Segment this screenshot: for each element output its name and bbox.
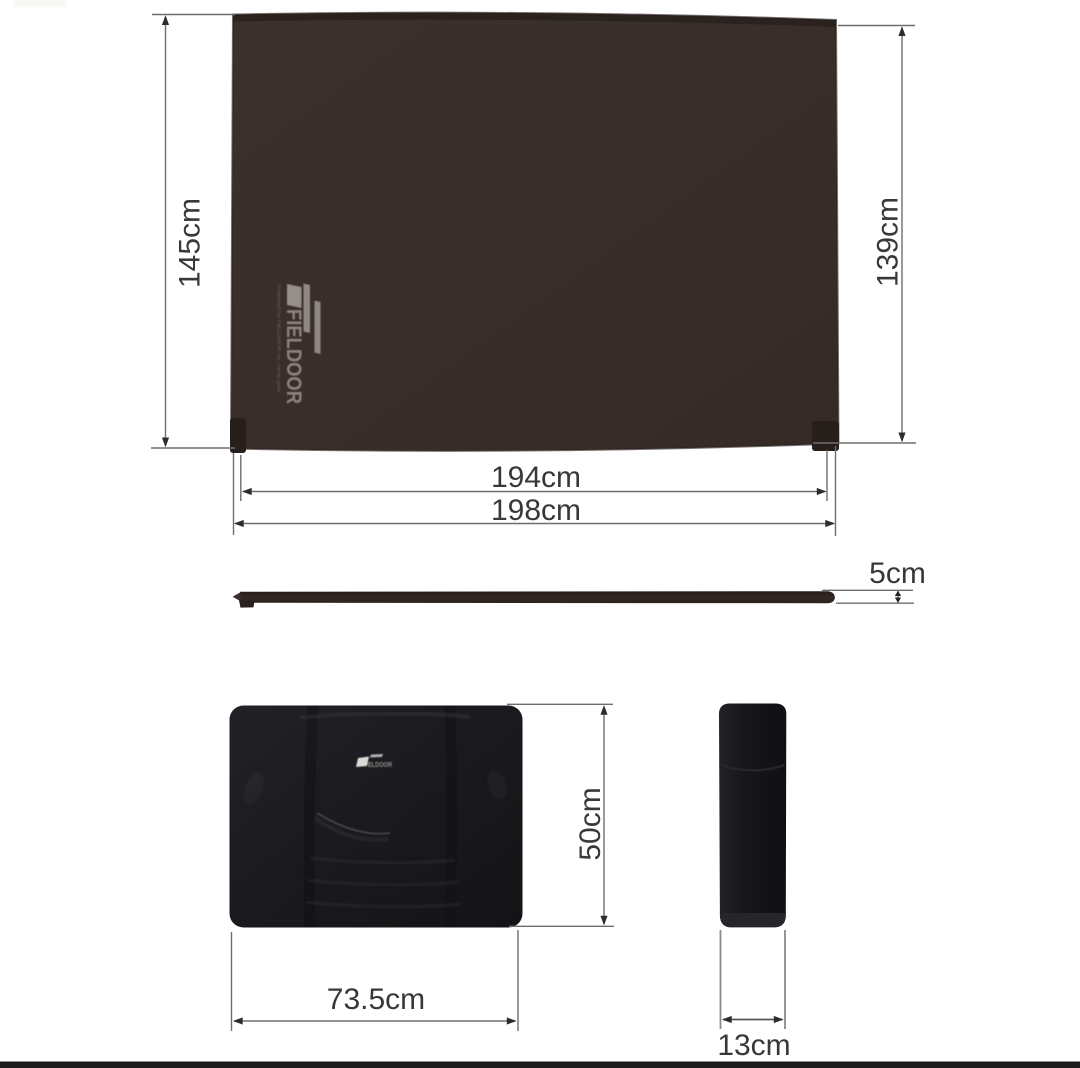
svg-text:13cm: 13cm — [717, 1029, 790, 1062]
svg-text:194cm: 194cm — [491, 461, 581, 494]
svg-text:139cm: 139cm — [872, 197, 905, 287]
svg-text:5cm: 5cm — [869, 557, 926, 590]
svg-text:73.5cm: 73.5cm — [327, 983, 425, 1016]
svg-text:50cm: 50cm — [574, 787, 607, 860]
svg-text:145cm: 145cm — [174, 198, 207, 288]
svg-text:ELDOOR: ELDOOR — [368, 760, 392, 769]
svg-text:Powered by FIELDOOR co. camp g: Powered by FIELDOOR co. camp gear — [277, 285, 282, 394]
svg-text:FIELDOOR: FIELDOOR — [282, 309, 305, 404]
svg-text:198cm: 198cm — [491, 494, 581, 527]
